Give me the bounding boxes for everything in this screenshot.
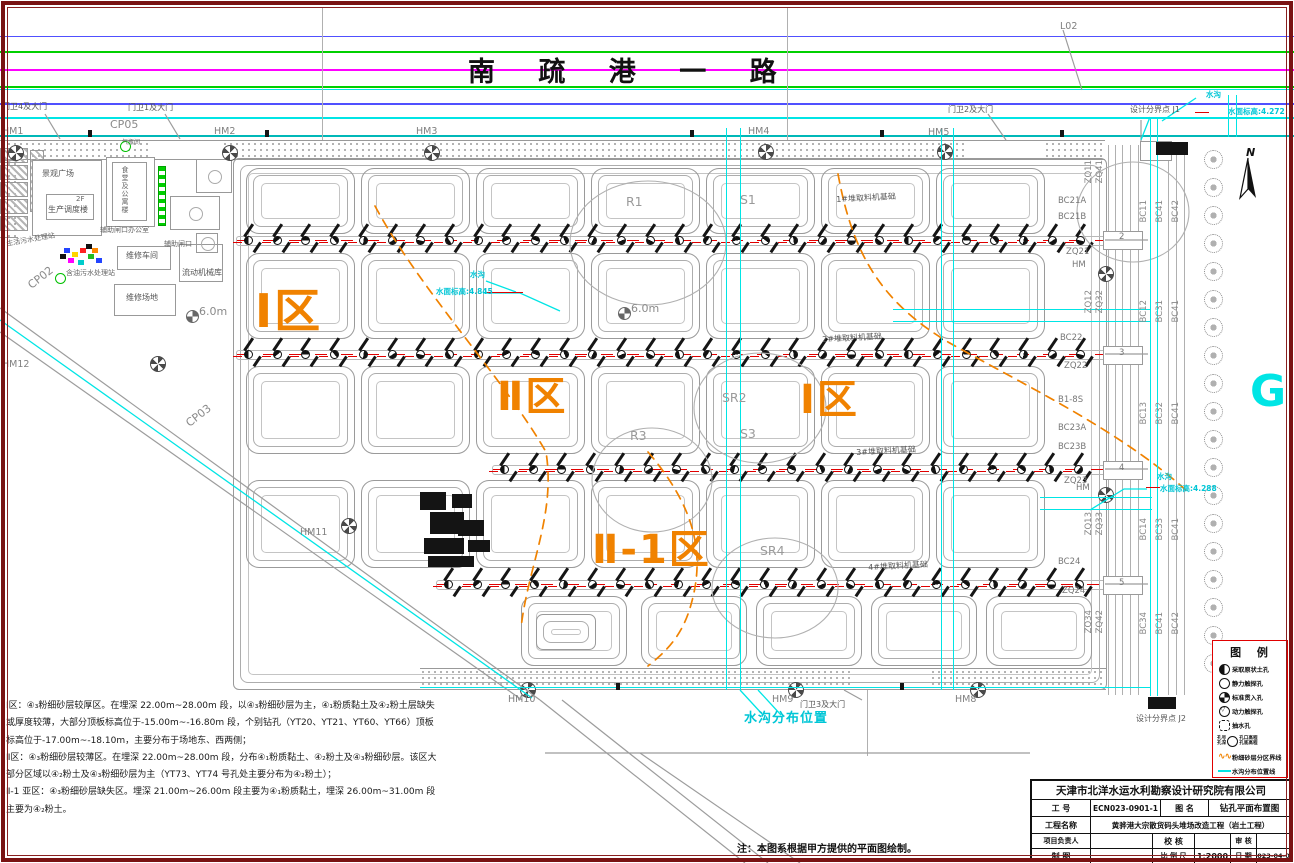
plan-label: SR4 (760, 545, 785, 558)
plan-label: 水面标高:4.288 (1160, 485, 1217, 493)
ditch-line (1040, 497, 1152, 498)
borehole-id-label: BC13 (1140, 402, 1149, 424)
title-block: 天津市北洋水运水利勘察设计研究院有限公司 工 号 ECN023-0901-1 图… (1030, 779, 1292, 861)
green-ladder-structure (158, 166, 166, 226)
plan-label: Ⅱ-1区 (592, 530, 711, 570)
borehole-id-label: BC41 (1172, 518, 1181, 540)
road-line (0, 135, 1294, 137)
stockpile-cell (706, 253, 815, 339)
plan-label: HM (1072, 261, 1086, 270)
legend-item-hole-callout: 孔号 孔深 孔口高程 孔底高程 (1217, 732, 1287, 750)
road-line (0, 89, 1294, 90)
equipment-bit (72, 252, 78, 257)
plan-label: 5 (1119, 579, 1124, 588)
date-label: 日 期 (1230, 848, 1256, 863)
scale-value: 1:2000 (1194, 848, 1230, 863)
plan-label: 维修场地 (126, 294, 158, 302)
project-name-value: 黄骅港大宗散货码头堆场改造工程（岩土工程） (1090, 816, 1290, 833)
borehole-id-label: BC12 (1140, 300, 1149, 322)
hydrant-icon (937, 144, 953, 160)
structure-line (1122, 145, 1123, 695)
plan-label: 6.0m (199, 306, 227, 317)
plan-label: 2 (1119, 233, 1124, 242)
sports-court (170, 196, 220, 230)
plan-label: 辅助闸口办公室 (100, 227, 149, 234)
benchmark-icon (186, 310, 199, 323)
plan-label: 水沟 (470, 271, 485, 279)
stockpile-cell (986, 596, 1092, 666)
equipment-bit (60, 254, 66, 259)
survey-point (1060, 130, 1064, 137)
drawing-source-note: 注：本图系根据甲方提供的平面图绘制。 (737, 840, 917, 855)
borehole-id-label: BC42 (1172, 200, 1181, 222)
plan-label: HM12 (2, 360, 29, 370)
benchmark-icon (618, 307, 631, 320)
zoning-notes: Ⅰ区：④₃粉细砂层较厚区。在埋深 22.00m~28.00m 段，以④₃粉细砂层… (6, 698, 438, 819)
ditch-line-icon (1217, 770, 1232, 772)
stockpile-cell (476, 480, 585, 568)
tree-icon (1204, 598, 1223, 617)
ditch-line (1040, 509, 1152, 510)
equipment-block (452, 494, 472, 508)
legend-item: 动力触探孔 (1217, 704, 1287, 718)
hydrant-icon (424, 145, 440, 161)
spt-hole-icon (1217, 692, 1232, 703)
tree-icon (1204, 234, 1223, 253)
survey-point (616, 683, 620, 690)
project-name-label: 工程名称 (1032, 816, 1090, 833)
legend-item: 抽水孔 (1217, 718, 1287, 732)
building-vertical-label: 食堂及公寓楼 (120, 166, 130, 218)
plan-label: L02 (1060, 22, 1077, 32)
tree-icon (1204, 542, 1223, 561)
legend-item: 水沟分布位置线 (1217, 764, 1287, 778)
date-value: 2023-04-05 (1256, 848, 1290, 863)
draft-label: 制 图 (1032, 848, 1090, 863)
plan-label: 生产调度楼 (48, 206, 88, 214)
road-name: 南 疏 港 一 路 (468, 50, 794, 89)
borehole-id-label: ZQ12 (1085, 290, 1094, 313)
plan-label: 水面标高:4.272 (1228, 108, 1285, 116)
tree-icon (1204, 514, 1223, 533)
ditch-line (953, 128, 954, 690)
plan-label: SR2 (722, 392, 747, 405)
tree-icon (1204, 206, 1223, 225)
borehole-id-label: ZQ13 (1085, 512, 1094, 535)
borehole-id-label: BC42 (1172, 612, 1181, 634)
green-marker-icon (55, 273, 66, 284)
stockpile-cell (591, 253, 700, 339)
note-zone2-1: Ⅱ-1 亚区：④₃粉细砂层缺失区。埋深 21.00m~26.00m 段主要为④₁… (6, 784, 438, 819)
plan-label: CP03 (184, 403, 213, 429)
hatched-structure (0, 165, 28, 180)
tree-icon (1204, 402, 1223, 421)
tree-icon (1204, 458, 1223, 477)
plan-label: HM2 (214, 127, 235, 137)
pm-value (1090, 833, 1152, 848)
borehole-id-label: BC11 (1140, 200, 1149, 222)
stockpile-cell (246, 366, 355, 454)
plan-label: 6.0m (631, 303, 659, 314)
plan-label: HM1 (2, 127, 23, 137)
tree-icon (1204, 430, 1223, 449)
plan-label: R3 (630, 430, 647, 443)
plan-label: BC24 (1058, 558, 1080, 567)
equipment-block (458, 520, 484, 536)
equipment-block (424, 538, 464, 554)
ditch-line (893, 321, 1151, 322)
plan-label: HM10 (508, 695, 535, 705)
plan-label: 含油污水处理站 (66, 270, 115, 277)
borehole-id-label: BC41 (1156, 200, 1165, 222)
plan-label: HM5 (928, 128, 949, 138)
plan-label: Ⅰ区 (800, 380, 859, 420)
ditch-line (1236, 95, 1237, 137)
elevation-leader-line (1146, 487, 1160, 488)
tree-icon (1204, 262, 1223, 281)
cpt-hole-icon (1217, 678, 1232, 689)
svg-text:N: N (1246, 146, 1255, 159)
plan-label: 维修车间 (126, 252, 158, 260)
structure-line (867, 690, 868, 756)
road-line (0, 117, 1294, 119)
ditch-line (420, 687, 1151, 688)
drawing-name-label: 图 名 (1160, 799, 1208, 816)
structure-line (1115, 145, 1116, 695)
legend-title: 图 例 (1217, 644, 1287, 660)
review-value (1256, 833, 1290, 848)
equipment-bit (86, 244, 92, 249)
drawing-name-value: 钻孔平面布置图 (1208, 799, 1290, 816)
tree-icon (1204, 374, 1223, 393)
borehole-id-label: BC31 (1156, 300, 1165, 322)
equipment-bit (68, 258, 74, 263)
drawing-canvas: 南 疏 港 一 路 食堂及公寓楼 Ⅰ区：④₃粉细砂层较厚区。在埋深 22.00m… (0, 0, 1294, 863)
road-line (0, 103, 1294, 105)
plan-label: Ⅰ区 (255, 288, 322, 334)
hatched-structure (0, 182, 28, 197)
stockpile-cell (361, 253, 470, 339)
plan-label: 气瓶间 (122, 140, 140, 146)
borehole-id-label: ZQ41 (1096, 160, 1105, 183)
structure-line (1130, 145, 1131, 695)
plan-label: CP02 (26, 265, 55, 291)
pumping-hole-icon (1217, 720, 1232, 731)
scale-label: 比 例 尺 (1152, 848, 1194, 863)
tree-icon (1204, 346, 1223, 365)
borehole-id-label: BC41 (1172, 402, 1181, 424)
plan-label: 辅助闸口 (164, 241, 192, 248)
borehole-id-label: ZQ32 (1096, 290, 1105, 313)
pm-label: 项目负责人 (1032, 833, 1090, 848)
stockpile-cell (641, 596, 747, 666)
equipment-bit (92, 248, 98, 253)
hydrant-icon (1098, 266, 1114, 282)
hydrant-icon (341, 518, 357, 534)
plan-label: 3 (1119, 349, 1124, 358)
ditch-line (941, 128, 942, 690)
survey-point (690, 130, 694, 137)
equipment-block (1148, 697, 1176, 709)
plan-label: 景观广场 (42, 170, 74, 178)
plan-label: 设计分界点 J2 (1136, 715, 1186, 723)
stockpile-cell (821, 253, 930, 339)
gate-gap (966, 141, 1042, 158)
note-zone2: Ⅱ区：④₃粉细砂层较薄区。在埋深 22.00m~28.00m 段，分布④₁粉质黏… (6, 750, 438, 785)
plan-label: BC21B (1058, 213, 1086, 222)
sample-hole-icon (1217, 664, 1232, 675)
stockpile-cell (821, 480, 930, 568)
equipment-block (1156, 142, 1188, 155)
plan-label: B1-8S (1058, 396, 1083, 405)
plan-label: BC22 (1060, 334, 1082, 343)
borehole-id-label: BC41 (1172, 300, 1181, 322)
tree-icon (1204, 318, 1223, 337)
plan-label: 2F (76, 196, 84, 203)
borehole-id-label: BC32 (1156, 402, 1165, 424)
review-label: 审 核 (1230, 833, 1256, 848)
ditch-line (1150, 118, 1151, 696)
equipment-bit (96, 258, 102, 263)
plan-label: HM11 (300, 528, 327, 538)
plan-label: 水沟 (1206, 91, 1221, 99)
borehole-id-label: BC34 (1140, 612, 1149, 634)
ditch-line (726, 128, 727, 690)
stockpile-cell (871, 596, 977, 666)
company-name: 天津市北洋水运水利勘察设计研究院有限公司 (1032, 781, 1290, 799)
hydrant-icon (150, 356, 166, 372)
job-number-value: ECN023-0901-1 (1090, 799, 1160, 816)
sports-court (196, 159, 232, 193)
stockpile-cell (246, 480, 355, 568)
zone-boundary-icon: ∿∿ (1217, 752, 1232, 762)
hatched-structure (0, 199, 28, 214)
plan-label: 门卫1及大门 (128, 104, 173, 112)
plan-label: HM3 (416, 127, 437, 137)
survey-point (880, 130, 884, 137)
equipment-bit (88, 254, 94, 259)
hatched-structure (0, 216, 28, 231)
dpt-hole-icon (1217, 706, 1232, 717)
legend-box: 图 例 采取原状土孔 静力触探孔 标准贯入孔 动力触探孔 抽水孔 孔号 孔深 孔… (1212, 640, 1288, 778)
legend-item: ∿∿ 粉细砂层分区界线 (1217, 750, 1287, 764)
plan-label: HM (1076, 484, 1090, 493)
hydrant-icon (222, 145, 238, 161)
hydrant-icon (758, 144, 774, 160)
tree-icon (1204, 150, 1223, 169)
hydrant-icon (1098, 487, 1114, 503)
plan-label: 水沟 (1157, 473, 1172, 481)
borehole-id-label: BC33 (1156, 518, 1165, 540)
stockpile-cell-small (536, 614, 596, 650)
note-zone1: Ⅰ区：④₃粉细砂层较厚区。在埋深 22.00m~28.00m 段，以④₃粉细砂层… (6, 698, 438, 750)
plan-label: ZQ24 (1062, 587, 1085, 596)
structure-line (322, 8, 323, 140)
structure-line (1168, 145, 1169, 695)
structure-line (1184, 145, 1185, 695)
borehole-id-label: BC41 (1156, 612, 1165, 634)
ditch-line (893, 309, 1151, 310)
ditch-line (1228, 95, 1229, 137)
plan-label: 门卫4及大门 (2, 103, 47, 111)
gate-gap (148, 141, 220, 158)
plan-label: 门卫3及大门 (800, 701, 845, 709)
plan-label: S1 (740, 194, 756, 207)
job-number-label: 工 号 (1032, 799, 1090, 816)
plan-label: 4 (1119, 464, 1124, 473)
check-label: 校 核 (1152, 833, 1194, 848)
borehole-id-label: ZQ42 (1096, 610, 1105, 633)
plan-label: 设计分界点 J1 (1130, 106, 1180, 114)
plan-label: HM8 (955, 695, 976, 705)
stockpile-cell (361, 366, 470, 454)
ditch-line (740, 128, 741, 690)
sports-court (196, 233, 218, 253)
equipment-block (420, 492, 446, 510)
draft-value (1090, 848, 1152, 863)
plan-label: 流动机械库 (182, 269, 222, 277)
tree-icon (1204, 290, 1223, 309)
north-arrow-icon: N (1240, 146, 1256, 198)
legend-item: 标准贯入孔 (1217, 690, 1287, 704)
stockpile-cell (756, 596, 862, 666)
borehole-id-label: BC14 (1140, 518, 1149, 540)
plan-label: BC21A (1058, 197, 1086, 206)
borehole-id-label: ZQ34 (1085, 610, 1094, 633)
stockpile-cell (706, 366, 815, 454)
survey-point (265, 130, 269, 137)
equipment-bit (64, 248, 70, 253)
survey-point (88, 130, 92, 137)
stockpile-cell (476, 253, 585, 339)
plan-label: 水沟分布位置 (744, 712, 828, 725)
plan-label: ZQ22 (1064, 362, 1087, 371)
plan-label: G (1250, 370, 1286, 414)
plan-label: HM9 (772, 695, 793, 705)
road-line (0, 36, 1294, 37)
structure-line (1108, 145, 1109, 695)
equipment-block (468, 540, 490, 552)
plan-label: 门卫2及大门 (948, 106, 993, 114)
plan-label: Ⅱ区 (497, 377, 567, 417)
elevation-leader-line (1195, 112, 1209, 113)
plan-label: HM4 (748, 127, 769, 137)
check-value (1194, 833, 1230, 848)
borehole-id-label: ZQ11 (1085, 160, 1094, 183)
equipment-bit (78, 260, 84, 265)
plan-label: CP05 (110, 119, 138, 130)
equipment-block (428, 556, 474, 567)
tree-icon (1204, 178, 1223, 197)
plan-label: 水面标高:4.845 (436, 288, 493, 296)
plan-label: BC23A (1058, 424, 1086, 433)
plan-label: R1 (626, 196, 643, 209)
plan-label: S3 (740, 428, 756, 441)
plan-label: ZQ21 (1066, 248, 1089, 257)
legend-item: 静力触探孔 (1217, 676, 1287, 690)
plan-label: BC23B (1058, 443, 1086, 452)
borehole-id-label: ZQ33 (1096, 512, 1105, 535)
hydrant-icon (8, 145, 24, 161)
survey-point (900, 683, 904, 690)
tree-icon (1204, 570, 1223, 589)
hole-callout-icon (1227, 736, 1238, 747)
legend-item: 采取原状土孔 (1217, 662, 1287, 676)
